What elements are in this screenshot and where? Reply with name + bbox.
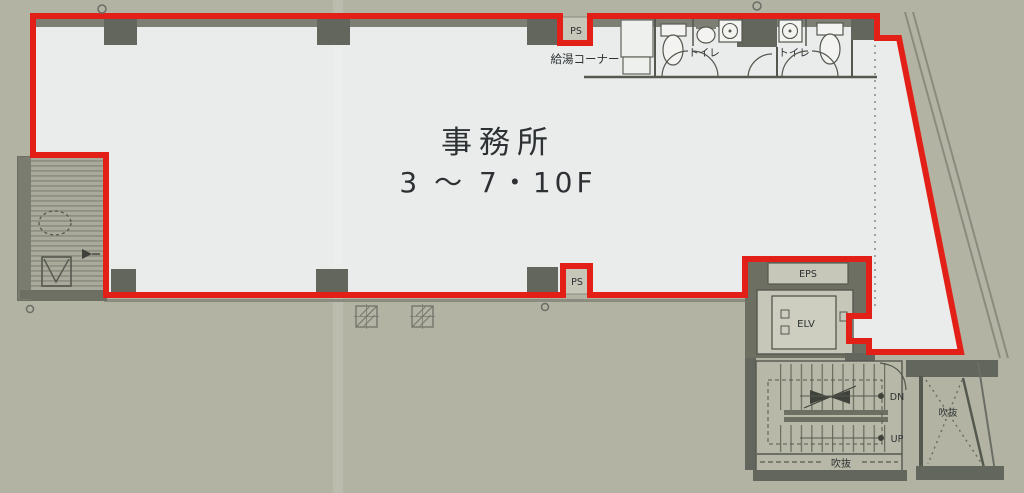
scan-crease [333,0,343,493]
column [527,267,558,296]
toilet-tank [661,24,686,36]
west-service-wall [18,157,31,300]
stair-landing-bar [784,417,888,422]
stair-up-label: UP [891,434,904,445]
void-right-label: 吹抜 [938,407,958,419]
pipe-shaft-top-label: PS [570,26,582,37]
toilet-bowl [663,35,683,65]
elevator-label: ELV [797,319,815,330]
stair-flight-upper [772,364,886,410]
column [104,19,137,45]
toilet-bowl [820,34,840,64]
kitchenette-label: 給湯コーナー [551,52,620,66]
west-service-wall-bottom [20,290,106,299]
urinal-bowl [697,27,715,43]
toilet-right-label: トイレ [778,47,810,59]
toilet-left-label: トイレ [688,47,720,59]
sink-drain [729,30,732,33]
stair-landing-bar [784,410,888,415]
duct-shaft [737,16,777,47]
floor-range-label: 3 〜 7・10F [399,166,596,199]
column [316,269,348,294]
pipe-shaft-bottom-label: PS [571,277,583,288]
toilet-tank [817,23,843,35]
column [527,19,561,45]
void-south-wall [916,466,1004,480]
column [851,16,875,40]
west-service-area [18,157,106,300]
column [111,269,136,296]
eps-label: EPS [799,269,817,280]
void-north-wall [906,360,998,377]
dn-path-dot [878,393,884,399]
void-bottom-label: 吹抜 [831,457,851,470]
floor-plan-drawing: 事務所 3 〜 7・10F PS PS 給湯コーナー トイレ [0,0,1024,493]
sink-drain [789,30,792,33]
kitchenette-counter [621,20,653,57]
void-west-wall [919,376,923,468]
kitchenette-sink [623,57,650,74]
south-wall-line [104,299,747,302]
column [317,19,350,45]
stair-south-wall [753,470,907,481]
stair-down-label: DN [890,392,904,403]
floor-plan-page: 事務所 3 〜 7・10F PS PS 給湯コーナー トイレ [0,0,1024,493]
office-label: 事務所 [441,125,555,161]
up-path-dot [878,435,884,441]
stair-west-wall [745,358,756,470]
